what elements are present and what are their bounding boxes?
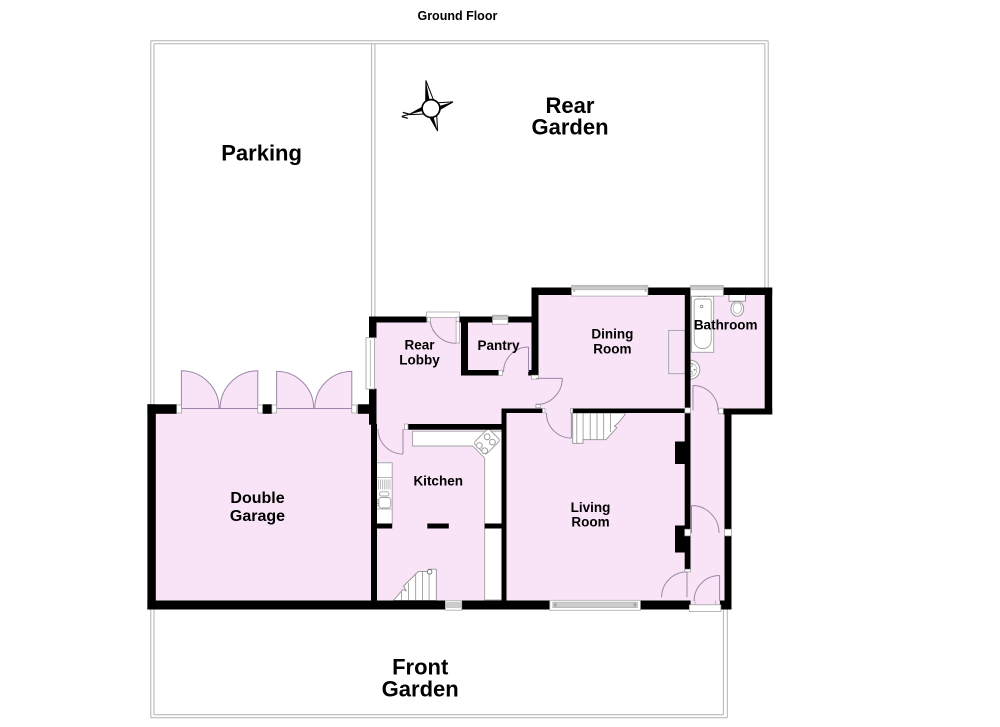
svg-text:Kitchen: Kitchen xyxy=(413,473,463,488)
svg-text:Garden: Garden xyxy=(382,676,459,701)
svg-text:Dining: Dining xyxy=(591,327,633,342)
svg-text:Room: Room xyxy=(571,515,609,530)
svg-text:Garden: Garden xyxy=(531,115,608,140)
svg-text:Pantry: Pantry xyxy=(477,338,520,353)
svg-text:Double: Double xyxy=(230,490,284,507)
svg-text:Ground Floor: Ground Floor xyxy=(417,9,497,23)
svg-text:Bathroom: Bathroom xyxy=(694,317,758,332)
svg-text:Room: Room xyxy=(593,342,631,357)
svg-text:Garage: Garage xyxy=(230,508,285,525)
svg-text:Parking: Parking xyxy=(221,141,302,166)
svg-text:Living: Living xyxy=(571,500,611,515)
svg-text:Lobby: Lobby xyxy=(399,353,440,368)
svg-text:Rear: Rear xyxy=(404,337,435,352)
